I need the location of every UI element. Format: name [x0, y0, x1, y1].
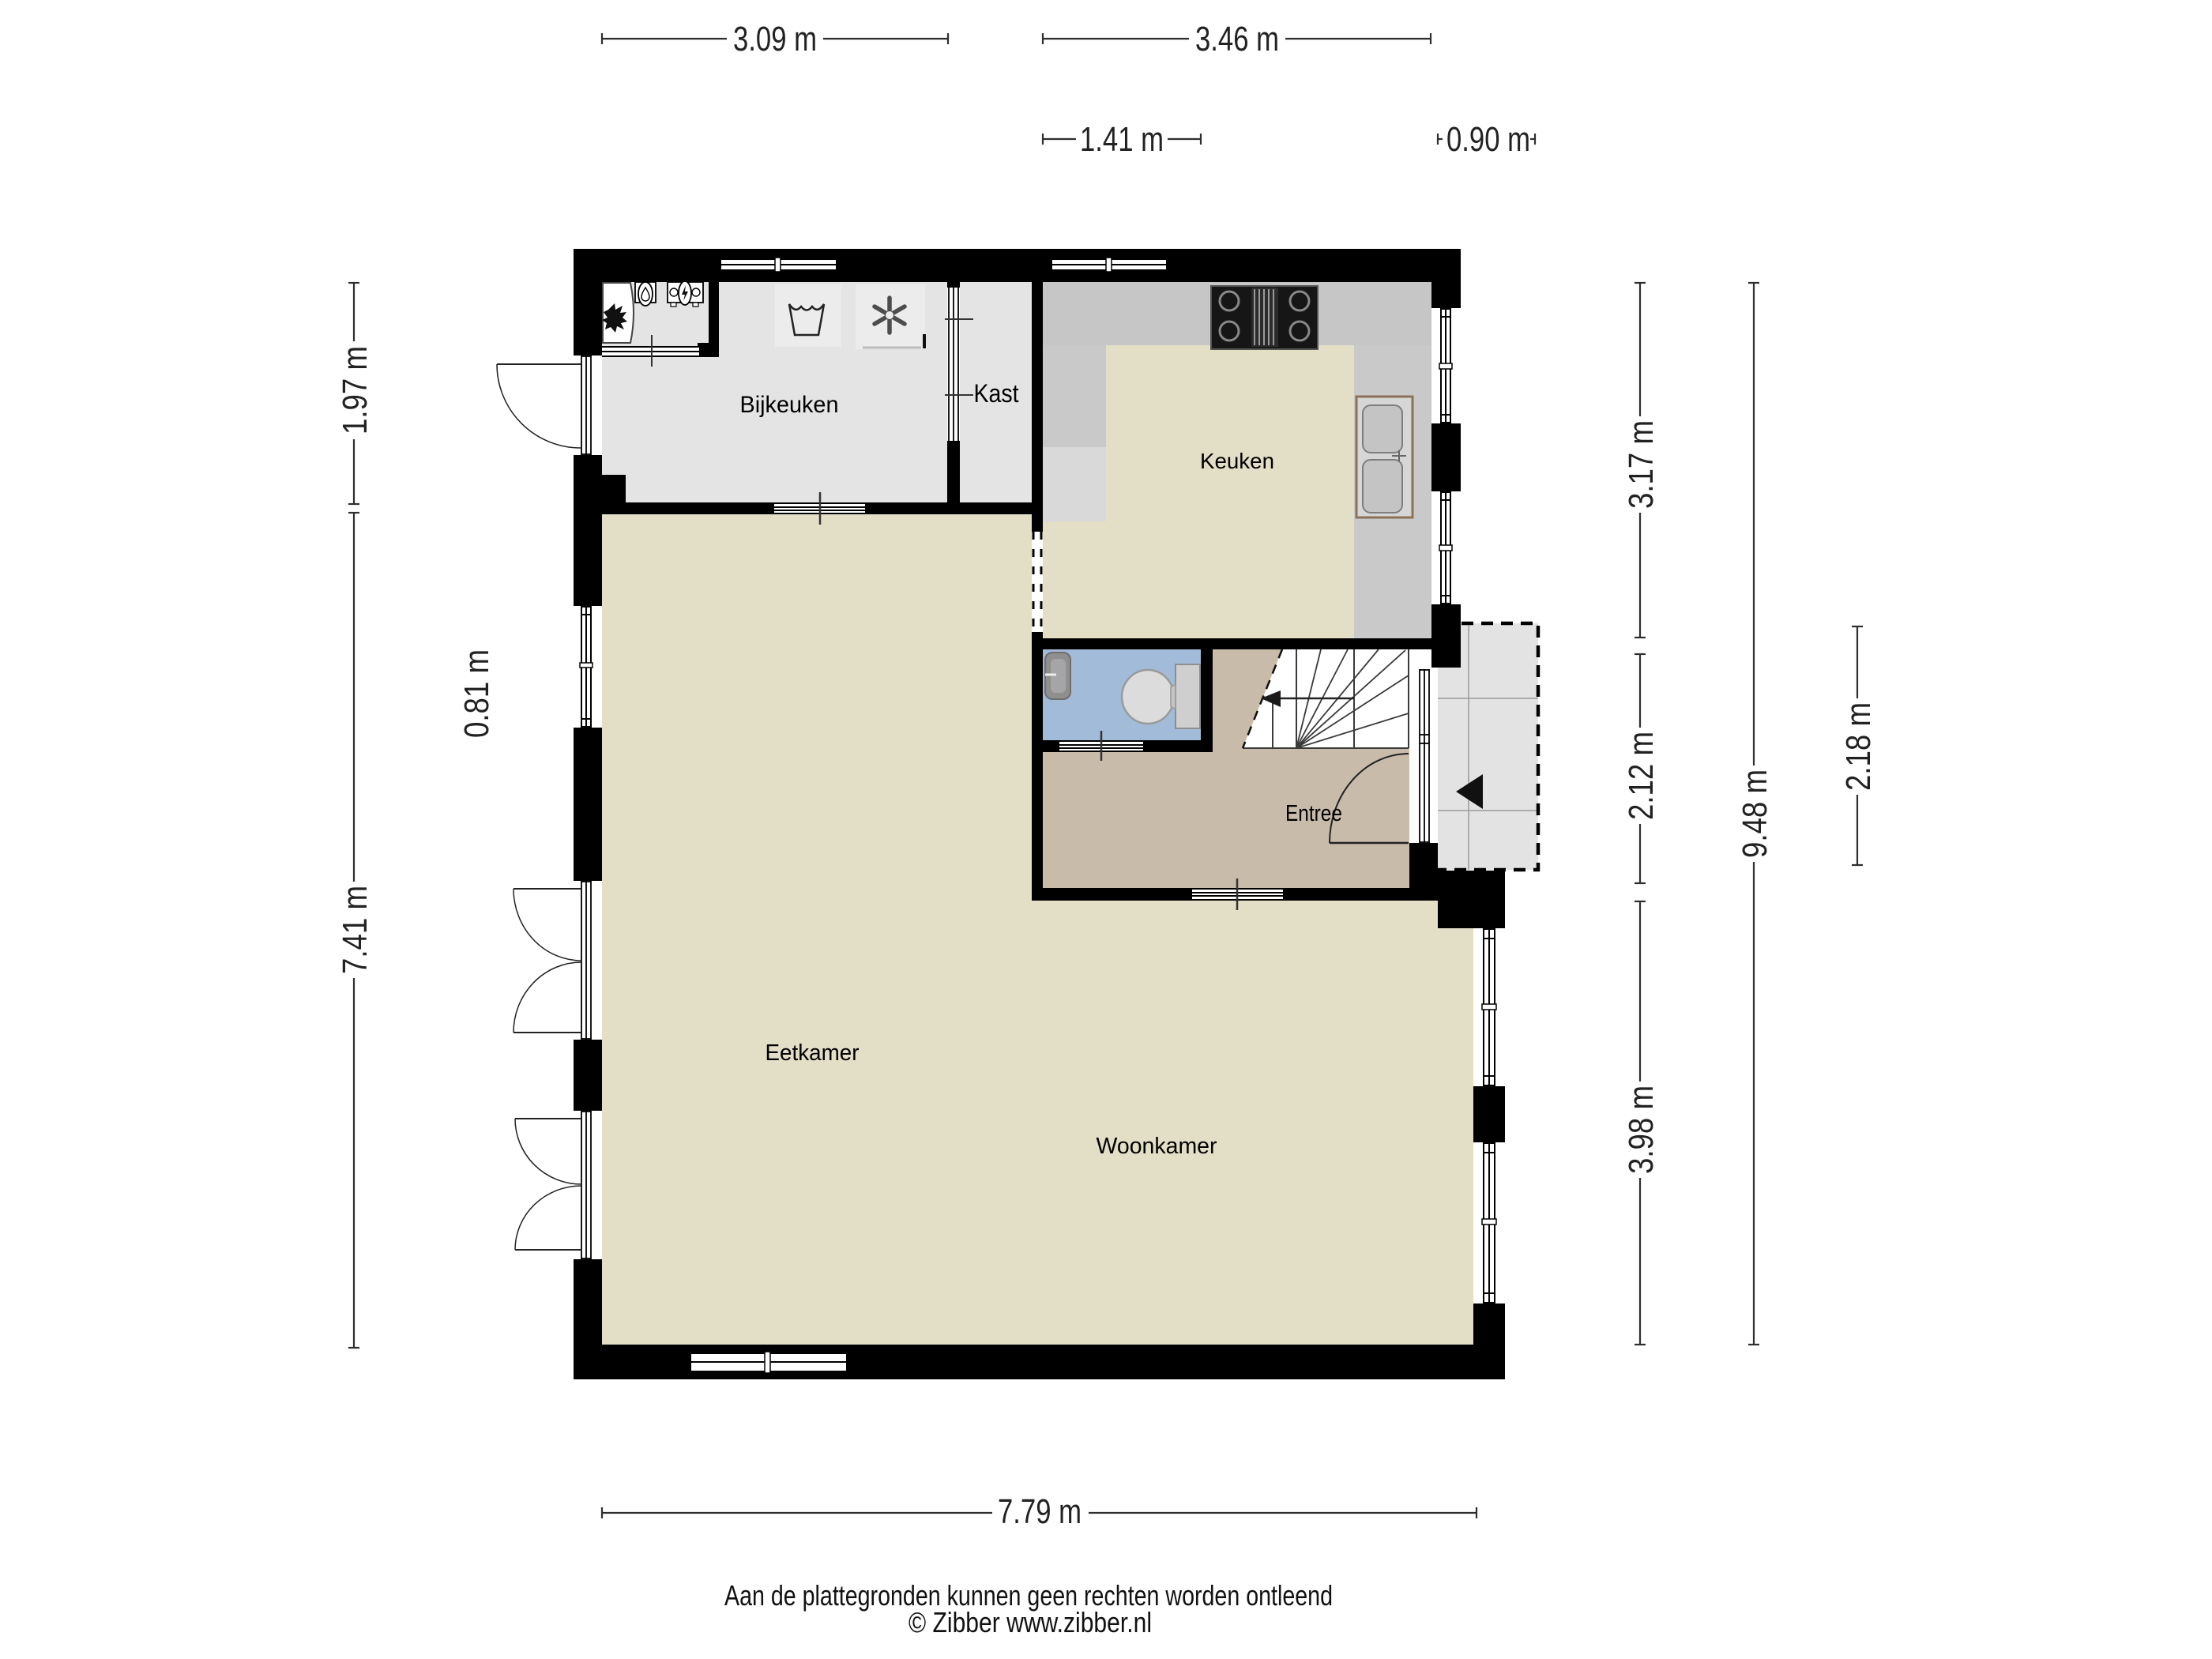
svg-text:2.18 m: 2.18 m — [1839, 702, 1878, 791]
svg-text:3.46 m: 3.46 m — [1195, 20, 1279, 58]
svg-text:0.90 m: 0.90 m — [1446, 120, 1530, 159]
svg-text:0.81 m: 0.81 m — [457, 649, 496, 738]
svg-text:7.79 m: 7.79 m — [998, 1492, 1082, 1531]
svg-text:© Zibber www.zibber.nl: © Zibber www.zibber.nl — [908, 1606, 1152, 1638]
svg-text:Entree: Entree — [1285, 801, 1342, 826]
svg-text:Kast: Kast — [974, 379, 1019, 408]
svg-text:Woonkamer: Woonkamer — [1097, 1134, 1217, 1159]
svg-text:Eetkamer: Eetkamer — [766, 1040, 860, 1066]
svg-text:1.97 m: 1.97 m — [336, 346, 374, 434]
svg-text:2.12 m: 2.12 m — [1622, 732, 1661, 820]
svg-text:3.98 m: 3.98 m — [1622, 1085, 1661, 1174]
svg-text:9.48 m: 9.48 m — [1736, 769, 1774, 858]
svg-text:Bijkeuken: Bijkeuken — [740, 392, 839, 418]
svg-text:3.09 m: 3.09 m — [733, 20, 817, 58]
svg-text:1.41 m: 1.41 m — [1080, 120, 1164, 159]
svg-text:3.17 m: 3.17 m — [1622, 420, 1661, 509]
svg-text:7.41 m: 7.41 m — [336, 886, 374, 974]
svg-text:Keuken: Keuken — [1200, 449, 1274, 473]
